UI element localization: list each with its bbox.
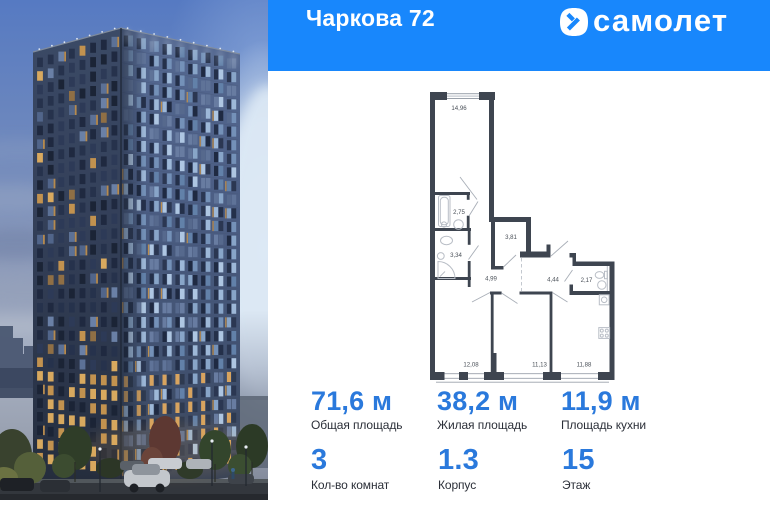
svg-text:11,88: 11,88	[577, 362, 592, 369]
svg-text:4,99: 4,99	[485, 276, 497, 283]
svg-text:2,17: 2,17	[581, 277, 593, 284]
svg-text:14,96: 14,96	[451, 105, 467, 112]
svg-text:2,75: 2,75	[453, 209, 465, 216]
svg-text:3,81: 3,81	[505, 234, 517, 241]
svg-text:4,44: 4,44	[547, 277, 559, 284]
svg-text:11,13: 11,13	[532, 362, 547, 369]
svg-text:3,34: 3,34	[450, 252, 462, 259]
svg-text:12,08: 12,08	[463, 362, 479, 369]
